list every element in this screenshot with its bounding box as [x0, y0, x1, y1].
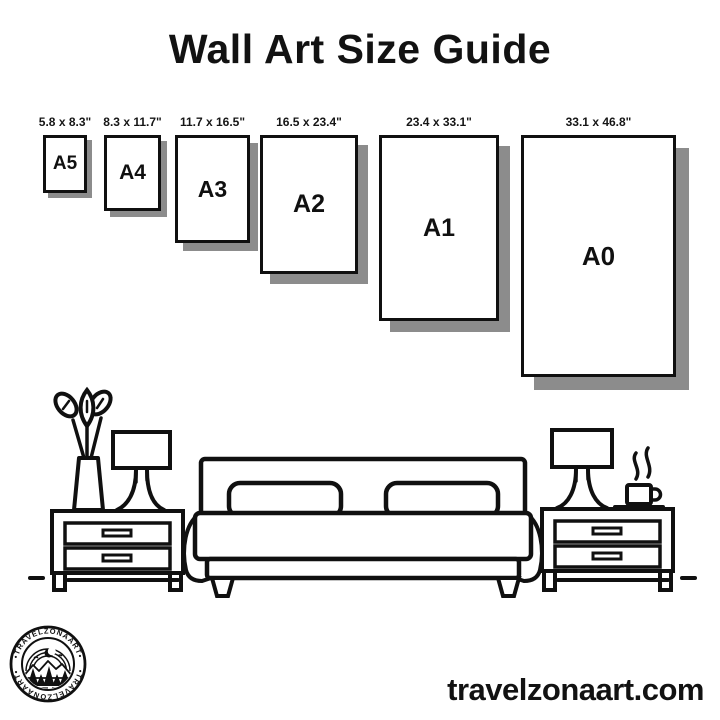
- vase: [74, 458, 103, 510]
- size-dimensions-label: 16.5 x 23.4": [276, 115, 342, 129]
- size-letter: A5: [53, 153, 77, 175]
- coffee-mug-icon: [615, 448, 663, 507]
- mug-body: [627, 485, 651, 504]
- size-dimensions-label: 5.8 x 8.3": [39, 115, 91, 129]
- size-dimensions-label: 8.3 x 11.7": [103, 115, 161, 129]
- moon-crescent-cut: [48, 647, 56, 655]
- lamp-base: [117, 470, 136, 510]
- table-lamp-left-icon: [113, 432, 170, 510]
- lamp-base: [588, 469, 607, 508]
- size-letter: A2: [293, 190, 325, 219]
- page-title: Wall Art Size Guide: [0, 26, 720, 73]
- table-lamp-right-icon: [552, 430, 612, 508]
- size-frame-a5: 5.8 x 8.3" A5: [43, 135, 87, 193]
- brand-logo-stamp: •TRAVELZONAART• •TRAVELZONAART•: [9, 625, 87, 703]
- steam-icon: [646, 448, 649, 477]
- size-frame-box: A4: [104, 135, 161, 211]
- size-letter: A3: [198, 176, 227, 203]
- lamp-shade: [113, 432, 170, 468]
- size-frame-box: A2: [260, 135, 358, 274]
- website-url: travelzonaart.com: [447, 672, 704, 708]
- mattress: [195, 513, 531, 559]
- size-frame-box: A3: [175, 135, 250, 243]
- size-frame-a4: 8.3 x 11.7" A4: [104, 135, 161, 211]
- bed-leg: [498, 578, 519, 596]
- size-dimensions-label: 23.4 x 33.1": [406, 115, 472, 129]
- lamp-base: [147, 470, 164, 510]
- size-frame-a2: 16.5 x 23.4" A2: [260, 135, 358, 274]
- size-letter: A0: [582, 241, 615, 272]
- size-frame-box: A1: [379, 135, 499, 321]
- bed-icon: [184, 459, 542, 596]
- size-guide-poster: Wall Art Size Guide 5.8 x 8.3" A5 8.3 x …: [0, 0, 720, 720]
- size-dimensions-label: 11.7 x 16.5": [180, 115, 245, 129]
- size-letter: A4: [119, 161, 146, 185]
- nightstand-right: [542, 509, 673, 590]
- bed-leg: [212, 578, 233, 596]
- bed-base: [207, 559, 519, 578]
- lamp-shade: [552, 430, 612, 467]
- steam-icon: [634, 453, 637, 479]
- nightstand-body: [52, 511, 183, 573]
- size-frame-a0: 33.1 x 46.8" A0: [521, 135, 676, 377]
- plant-vase-icon: [51, 388, 115, 510]
- stem: [73, 420, 84, 458]
- size-frame-a1: 23.4 x 33.1" A1: [379, 135, 499, 321]
- nightstand-body: [542, 509, 673, 571]
- size-letter: A1: [423, 214, 455, 243]
- stem: [91, 418, 101, 458]
- size-frame-a3: 11.7 x 16.5" A3: [175, 135, 250, 243]
- bedroom-illustration: [0, 378, 720, 610]
- lamp-base: [557, 469, 576, 508]
- size-frame-box: A0: [521, 135, 676, 377]
- size-frame-box: A5: [43, 135, 87, 193]
- size-dimensions-label: 33.1 x 46.8": [566, 115, 632, 129]
